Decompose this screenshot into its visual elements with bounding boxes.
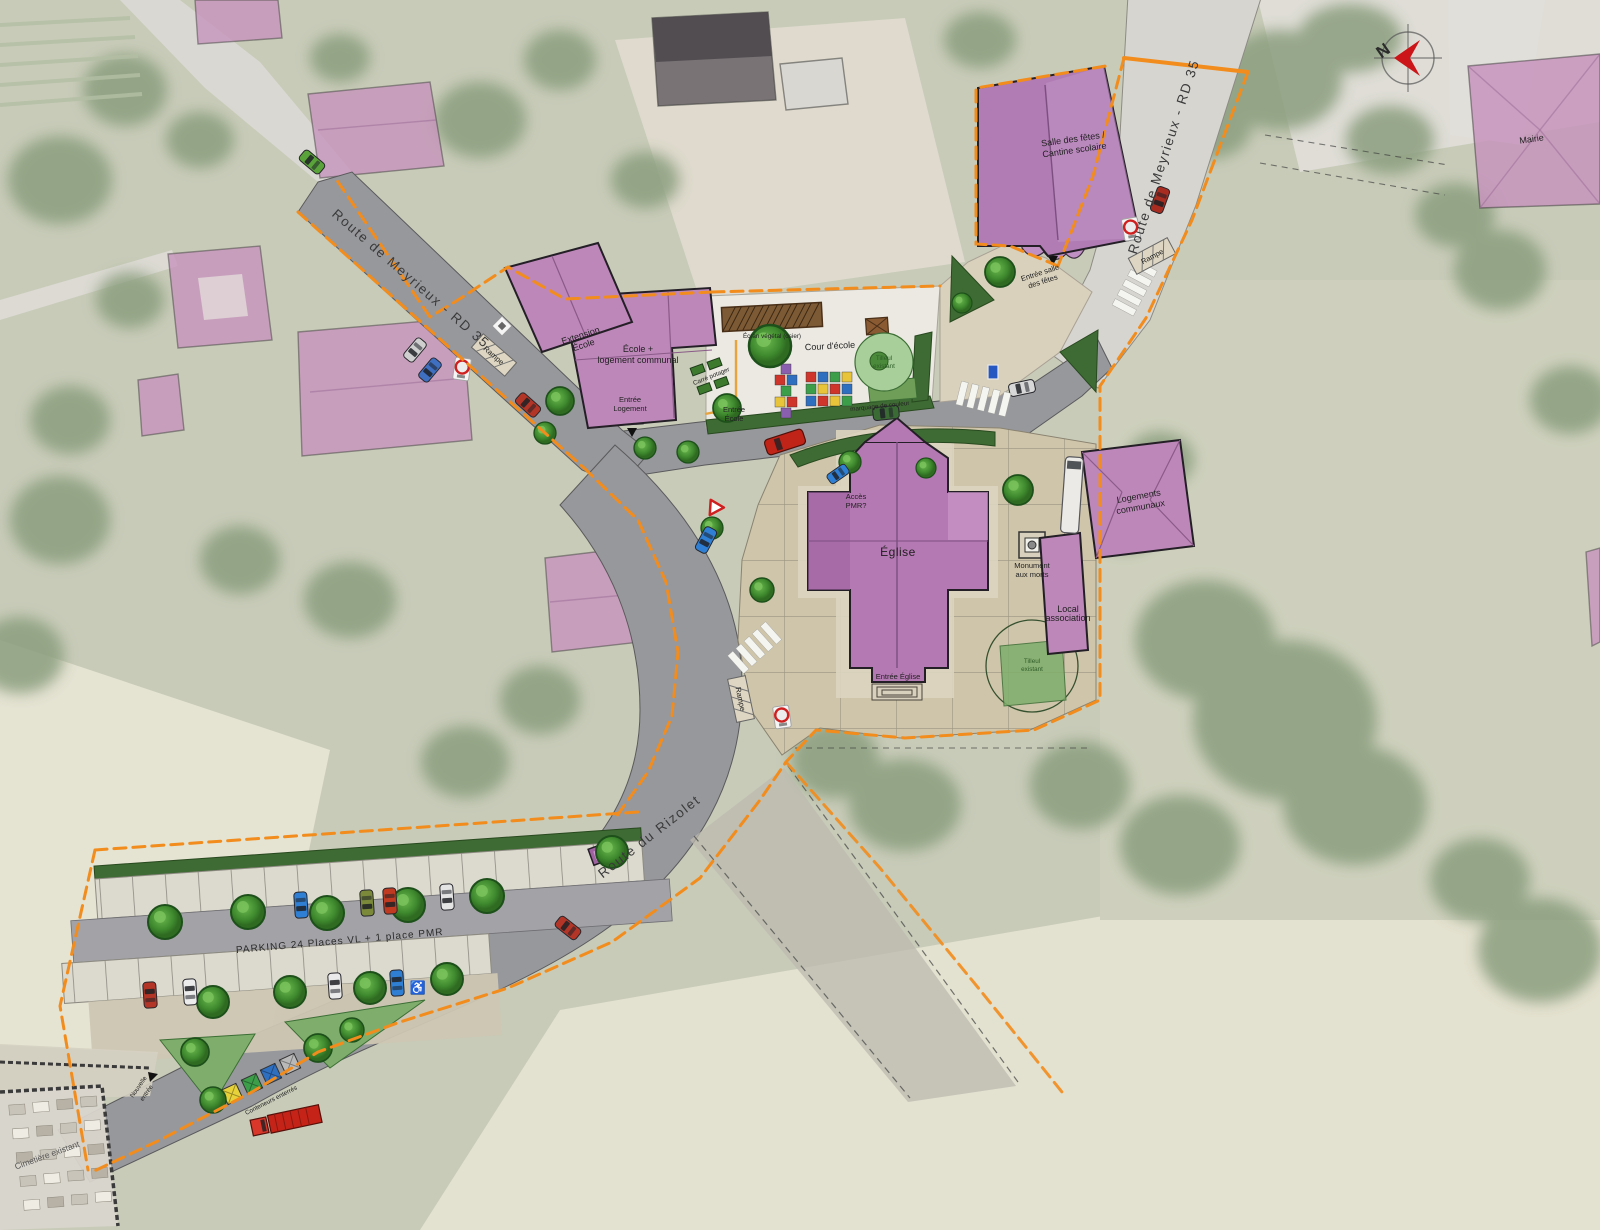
label-tilleul-se-2: existant [1021, 666, 1043, 673]
composteur [865, 317, 888, 334]
building-mairie [1468, 54, 1600, 208]
label-entree-eglise: Entrée Église [876, 672, 921, 681]
site-plan-canvas: ♿ [0, 0, 1600, 1230]
label-ecole-2: logement communal [597, 355, 678, 365]
label-ecran: Écran végétal (osier) [743, 331, 801, 340]
zone-sign-south [773, 705, 792, 729]
label-tilleul-cour-1: Tilleul [876, 355, 892, 362]
label-monument-1: Monument [1014, 561, 1050, 570]
label-monument-2: aux morts [1016, 570, 1049, 579]
label-tilleul-se-1: Tilleul [1024, 658, 1040, 665]
label-entree-logement-1: Entrée [619, 395, 641, 404]
label-entree-logement-2: Logement [613, 404, 647, 413]
blue-sign [988, 365, 998, 379]
label-acces-2: PMR? [846, 501, 867, 510]
label-eglise: Église [880, 544, 916, 559]
plan-svg: ♿ [0, 0, 1600, 1230]
label-entree-ecole-1: Entrée [723, 405, 745, 414]
building-local-association [1040, 533, 1088, 654]
label-tilleul-cour-2: existant [873, 363, 895, 370]
label-acces-1: Accès [846, 492, 867, 501]
pmr-stall-icon: ♿ [410, 980, 426, 995]
label-local-2: association [1045, 613, 1090, 623]
label-entree-ecole-2: École [725, 414, 744, 423]
eglise-steps [872, 684, 922, 700]
label-ecole-1: École + [623, 344, 653, 354]
tilleul-existant-circle-cour [855, 333, 913, 391]
